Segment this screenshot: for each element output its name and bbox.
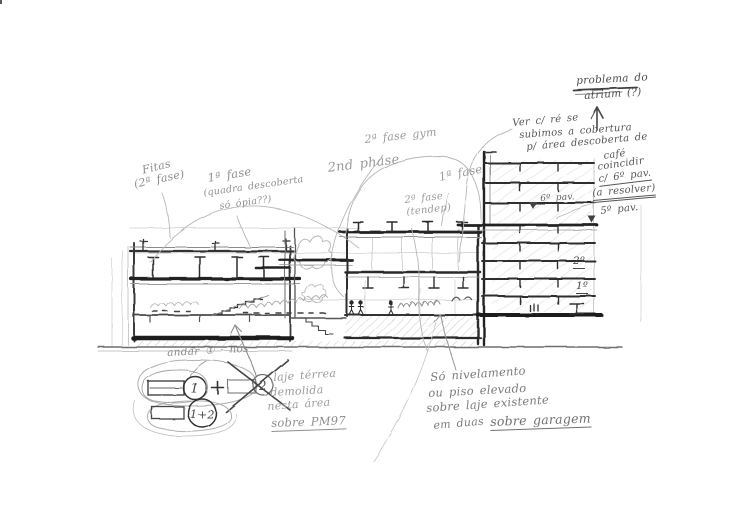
caption-leader [190,361,206,377]
floor-ibeams [363,277,468,288]
note-slab-line4: sobre PM97 [271,415,346,431]
human-figure [359,301,364,314]
diagram-label-2: 2 [258,379,267,393]
level-label-6pav: 6º pav. [540,193,575,204]
basement-stair [300,318,333,334]
left-ibeams [148,257,269,277]
plan-bar-combined [152,407,184,419]
diagram-label-1: 1 [191,382,199,397]
human-figure [389,301,394,314]
diagram-label-combined: 1+2 [190,407,214,421]
center-block-section [340,222,481,344]
basement-hatch [346,316,478,337]
tree-sketch [294,236,333,269]
human-figure [350,301,355,314]
courtyard-and-trees [240,229,352,334]
roof-ibeams [353,222,467,232]
floor-diagram-sketch: 1 2 1+2 [134,360,290,436]
scan-artifact [0,0,2,4]
floor-label-1: 1º [576,281,588,294]
floor-label-2: 2º [573,256,585,269]
tower-section [458,152,601,345]
staircase [214,299,262,314]
sketch-page: 1 2 1+2 problema do atrium (?) Ver c/ ré… [0,0,750,530]
left-block-section [128,239,300,345]
plus-sign [212,382,224,394]
